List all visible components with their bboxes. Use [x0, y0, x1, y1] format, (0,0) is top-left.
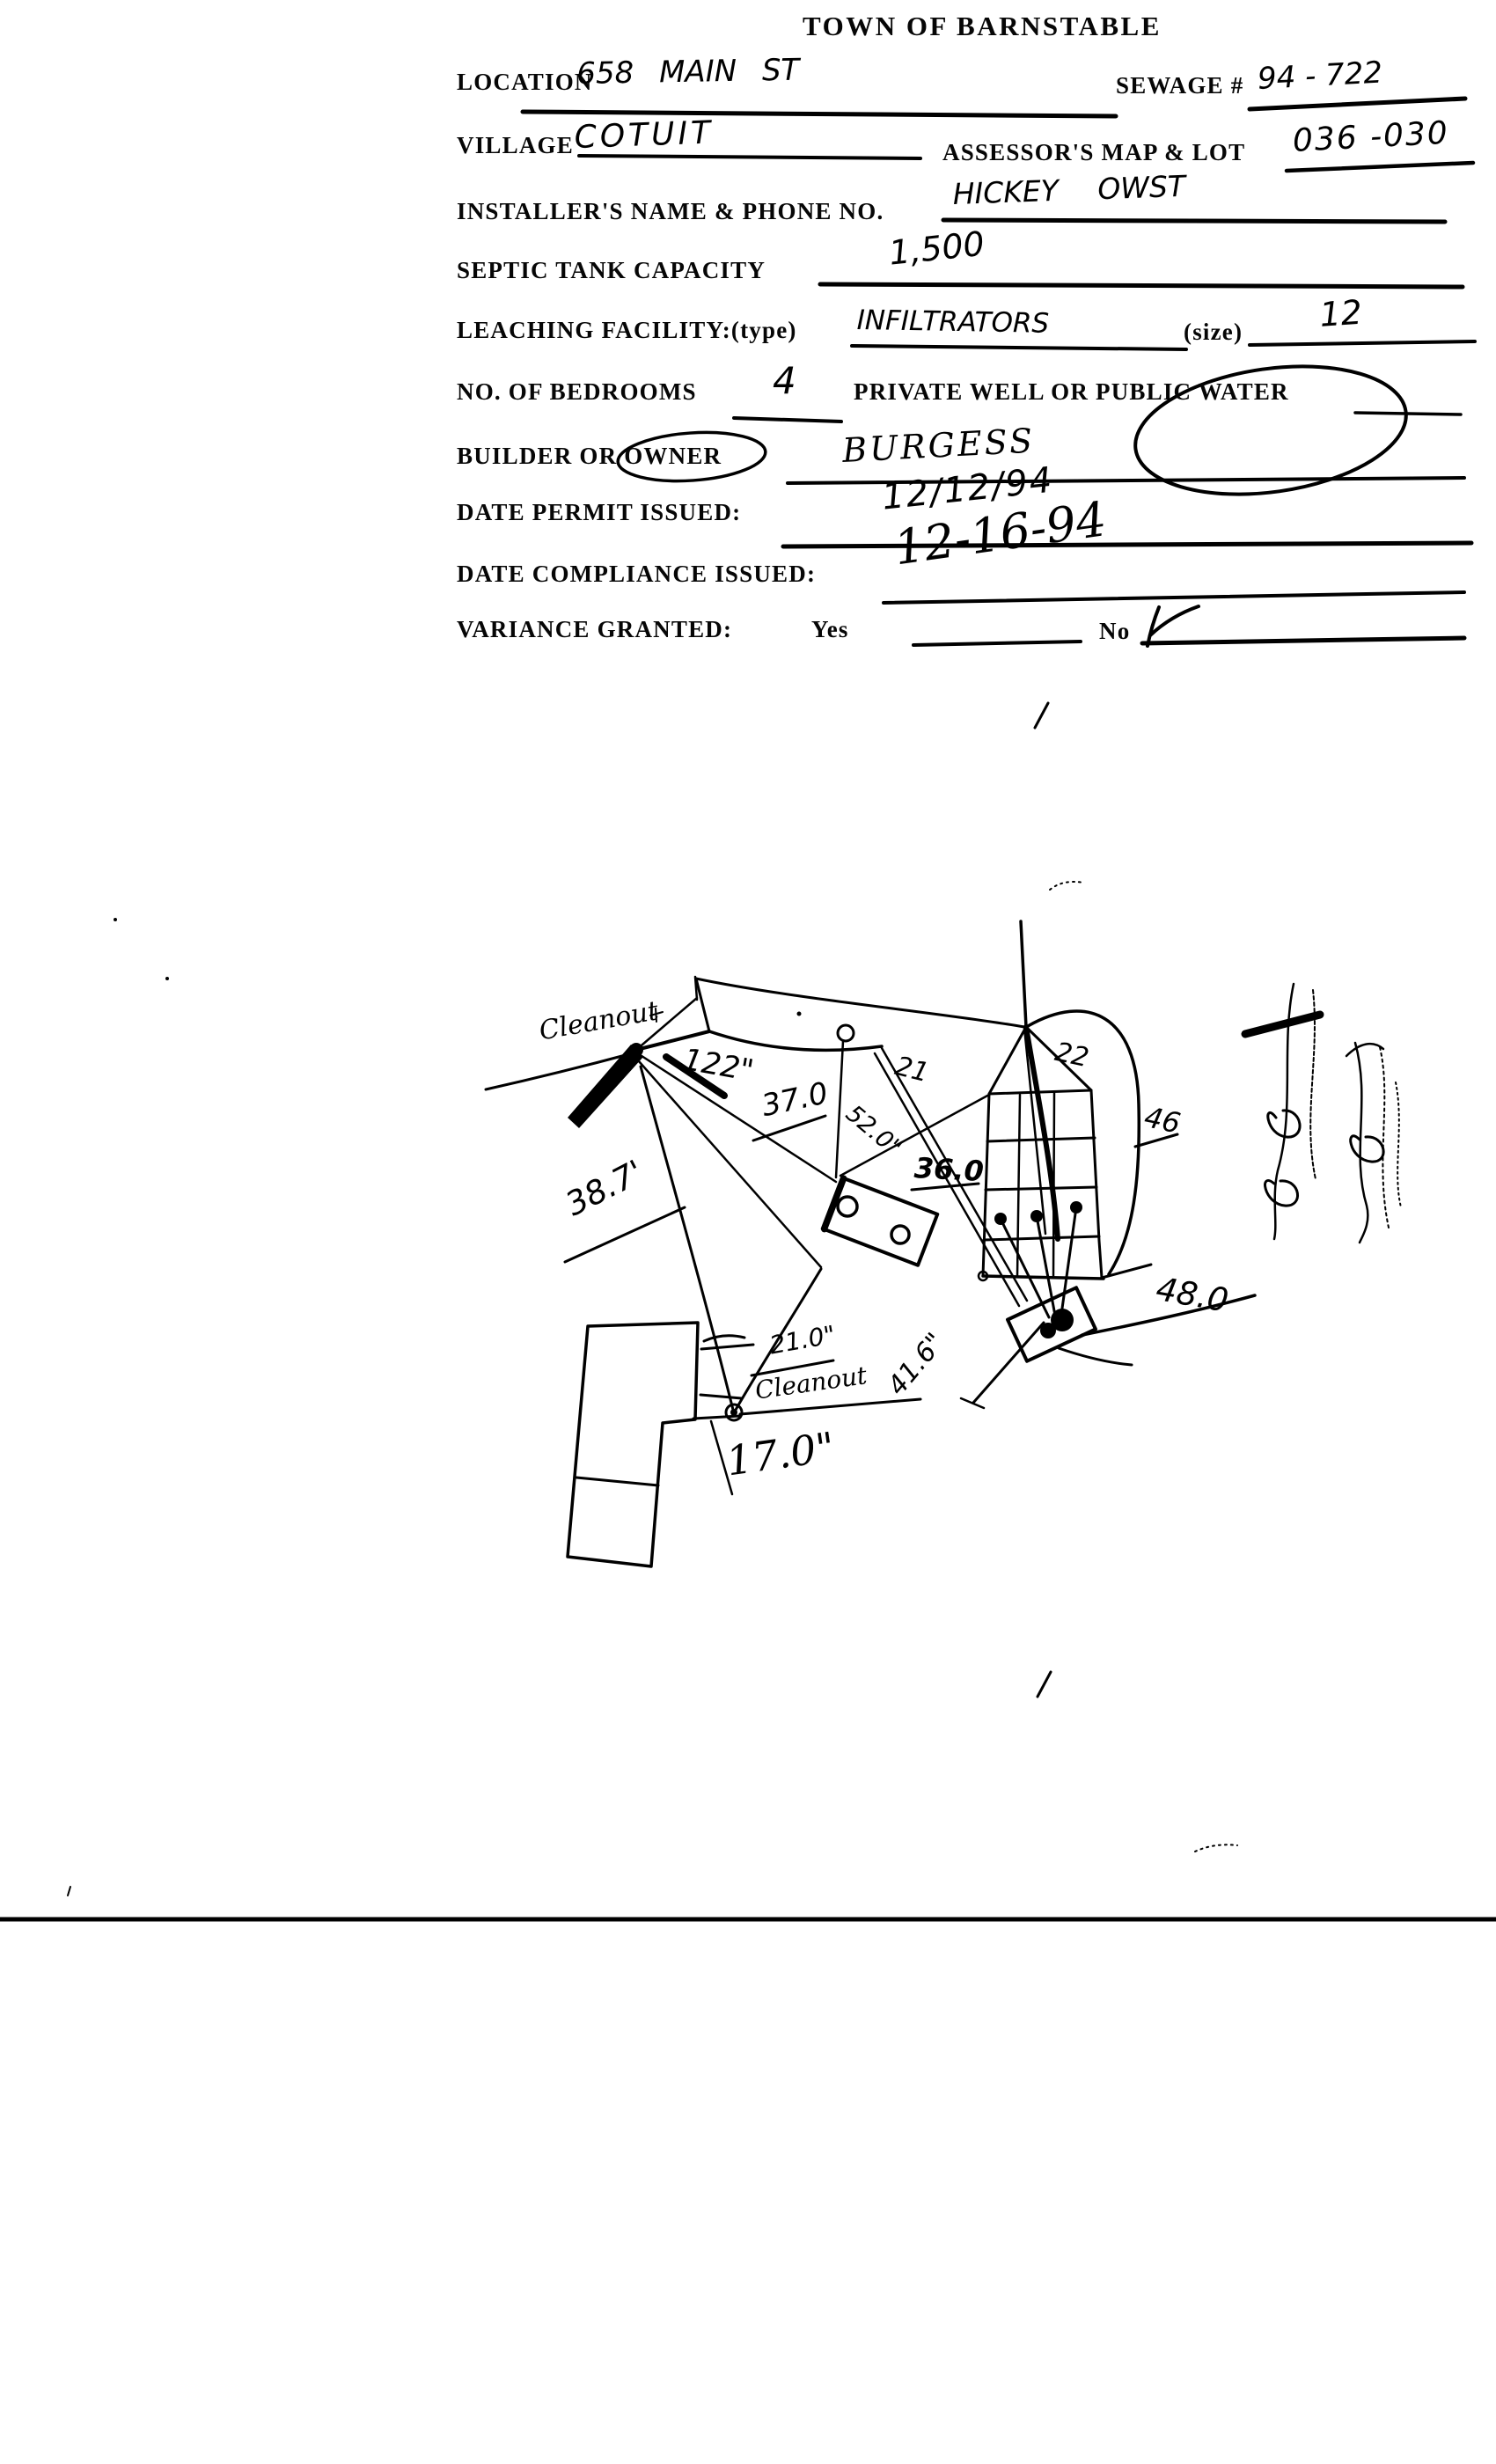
leaching-size-label: (size)	[1184, 319, 1243, 346]
builder-label-prefix: BUILDER OR	[457, 443, 617, 469]
vent-circle	[838, 1025, 854, 1041]
sewage-value: 94 - 722	[1257, 55, 1383, 97]
builder-label: BUILDER OR OWNER	[457, 443, 722, 470]
variance-label: VARIANCE GRANTED:	[457, 616, 732, 643]
ink-layer	[0, 0, 1496, 2464]
septic-capacity-label: SEPTIC TANK CAPACITY	[457, 257, 766, 284]
no-checkmark	[1148, 606, 1199, 646]
building-outline	[568, 1323, 698, 1566]
margin-scribble	[1245, 984, 1401, 1243]
variance-no-label: No	[1099, 618, 1130, 645]
assessors-label: ASSESSOR'S MAP & LOT	[942, 139, 1245, 166]
public-water-circle	[1127, 350, 1414, 510]
compliance-label: DATE COMPLIANCE ISSUED:	[457, 561, 816, 588]
water-label-prefix: PRIVATE WELL OR	[854, 378, 1089, 405]
leaching-label: LEACHING FACILITY:(type)	[457, 317, 797, 344]
sketch-dim-22: 22	[1052, 1037, 1092, 1074]
sketch-dim-36-0: 36.0	[913, 1151, 985, 1188]
village-value: COTUIT	[574, 114, 715, 156]
leaching-size-value: 12	[1318, 293, 1363, 334]
bedrooms-label: NO. OF BEDROOMS	[457, 378, 697, 406]
stray-marks	[68, 703, 1237, 1896]
septic-tank	[823, 1177, 938, 1265]
water-label: PRIVATE WELL OR PUBLIC WATER	[854, 378, 1289, 406]
village-label: VILLAGE	[457, 132, 574, 159]
installer-label: INSTALLER'S NAME & PHONE NO.	[457, 198, 884, 225]
permit-label: DATE PERMIT ISSUED:	[457, 499, 741, 526]
variance-yes-label: Yes	[811, 616, 849, 643]
page-title: TOWN OF BARNSTABLE	[803, 11, 1162, 42]
location-value: 658 MAIN ST	[576, 53, 800, 92]
bedrooms-value: 4	[773, 359, 796, 402]
scanned-permit-document: TOWN OF BARNSTABLE LOCATION 658 MAIN ST …	[0, 0, 1496, 2464]
builder-circled-word: OWNER	[624, 443, 722, 470]
leaching-type-value: INFILTRATORS	[856, 304, 1049, 340]
water-circled-word: PUBLIC WATER	[1096, 378, 1289, 406]
sketch-dim-46: 46	[1141, 1100, 1184, 1140]
sewage-label: SEWAGE #	[1116, 72, 1243, 99]
location-label: LOCATION	[457, 69, 593, 96]
